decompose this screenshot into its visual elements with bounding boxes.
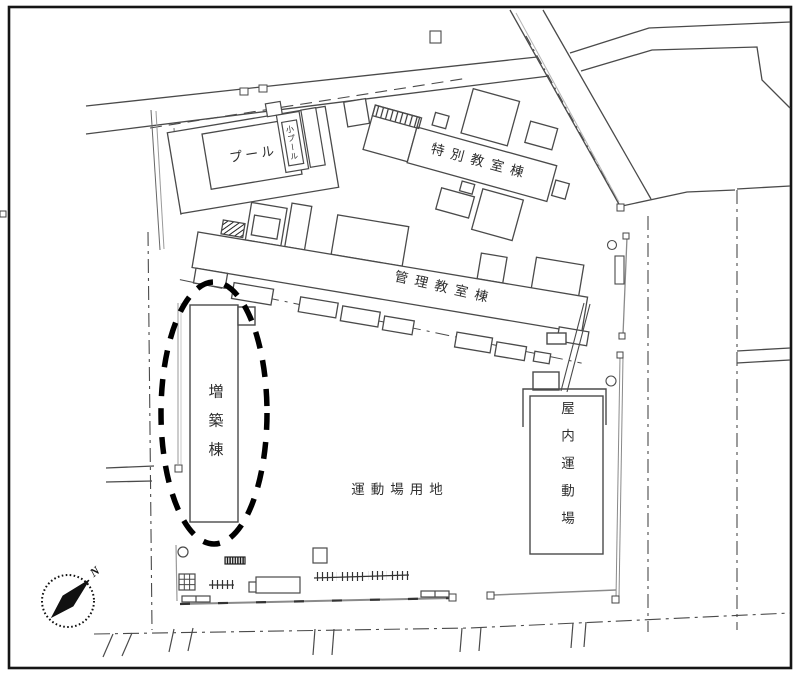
- fence-short: [209, 580, 234, 589]
- fence-long: [314, 571, 409, 581]
- sports-ground-label: 運動場用地: [351, 478, 449, 498]
- drawing-frame: [9, 7, 791, 668]
- extension-label: 増築棟: [205, 384, 226, 471]
- site-plan: プール 小プール 特別教室棟 管理教室棟 増築棟 運動場用地 屋内運動場 N: [0, 0, 800, 677]
- bench: [182, 596, 210, 602]
- bench: [421, 591, 449, 597]
- indoor-gym-label: 屋内運動場: [556, 401, 576, 539]
- site-plan-drawing: [0, 0, 800, 677]
- grid-structure: [179, 574, 195, 590]
